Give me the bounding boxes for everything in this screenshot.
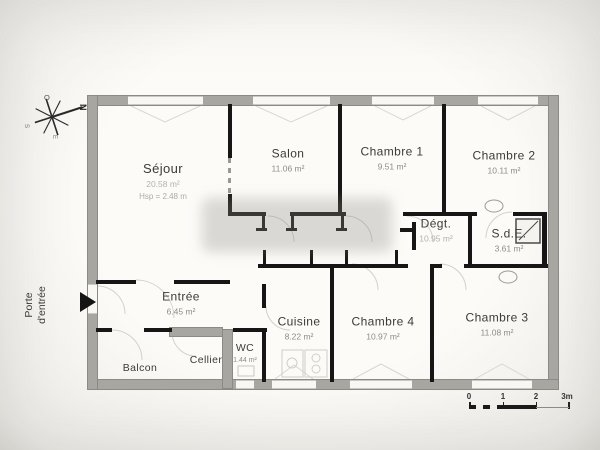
compass-rose-icon: O N S E bbox=[22, 86, 92, 156]
interior-wall-segment bbox=[464, 264, 548, 268]
exterior-wall-segment bbox=[170, 328, 222, 336]
room-label-chambre4: Chambre 4 10.97 m² bbox=[352, 315, 415, 342]
compass-west-label: O bbox=[44, 93, 50, 102]
room-label-wc: WC 1.44 m² bbox=[233, 342, 257, 364]
interior-wall-segment bbox=[258, 264, 408, 268]
window-opening bbox=[478, 96, 538, 105]
room-label-cuisine: Cuisine 8.22 m² bbox=[278, 315, 321, 342]
interior-wall-segment bbox=[412, 222, 416, 250]
washbasin-icon bbox=[499, 271, 517, 283]
room-label-salon: Salon 11.06 m² bbox=[272, 147, 305, 174]
interior-wall-segment bbox=[400, 228, 412, 232]
interior-wall-segment bbox=[96, 328, 112, 332]
interior-wall-segment bbox=[395, 250, 398, 264]
interior-wall-segment bbox=[262, 330, 266, 382]
kitchen-fixtures bbox=[282, 350, 327, 377]
room-label-entree: Entrée 6.45 m² bbox=[162, 290, 200, 317]
compass-south-label: S bbox=[23, 124, 29, 128]
entrance-label-line1: Porte bbox=[23, 275, 36, 335]
entrance-arrow-icon bbox=[80, 292, 96, 312]
window-opening bbox=[128, 96, 203, 105]
interior-wall-segment bbox=[144, 328, 172, 332]
ceiling-height-note: Hsp = 2.48 m bbox=[139, 192, 187, 201]
interior-wall-segment bbox=[310, 250, 313, 264]
scale-bar: 0 1 2 3m bbox=[466, 392, 576, 414]
window-opening bbox=[472, 380, 532, 389]
room-label-chambre2: Chambre 2 10.11 m² bbox=[473, 149, 536, 176]
interior-wall-segment bbox=[174, 280, 230, 284]
interior-wall-segment bbox=[263, 250, 266, 264]
room-label-sde: S.d.E. 3.61 m² bbox=[491, 227, 526, 254]
interior-wall-segment bbox=[262, 284, 266, 308]
interior-wall-segment bbox=[403, 212, 477, 216]
interior-wall-segment bbox=[442, 104, 446, 216]
entrance-door-label: Porte d'entrée bbox=[23, 275, 81, 335]
interior-wall-segment bbox=[96, 280, 136, 284]
interior-wall-segment bbox=[542, 212, 547, 268]
exterior-wall-segment bbox=[223, 330, 232, 388]
entrance-label-line2: d'entrée bbox=[36, 275, 49, 335]
compass-north-label: N bbox=[78, 104, 88, 111]
watermark-blur bbox=[202, 198, 392, 252]
floor-plan-photo: O N S E Porte d'entrée Séjour 20.58 m² H… bbox=[0, 0, 600, 450]
interior-wall-segment bbox=[345, 250, 348, 264]
compass-east-label: E bbox=[51, 135, 57, 139]
room-label-balcon: Balcon bbox=[123, 362, 158, 374]
interior-wall-segment bbox=[233, 328, 267, 332]
sliding-door-dash bbox=[228, 158, 231, 194]
interior-wall-segment bbox=[513, 212, 546, 216]
window-opening bbox=[253, 96, 330, 105]
interior-wall-segment bbox=[330, 268, 334, 382]
room-label-chambre3: Chambre 3 11.08 m² bbox=[466, 311, 529, 338]
interior-wall-segment bbox=[430, 268, 434, 382]
scale-tick-label: 0 bbox=[467, 392, 471, 401]
room-label-chambre1: Chambre 1 9.51 m² bbox=[361, 145, 424, 172]
window-opening bbox=[350, 380, 412, 389]
toilet-icon bbox=[238, 366, 254, 376]
window-opening bbox=[372, 96, 434, 105]
interior-wall-segment bbox=[228, 104, 232, 158]
room-label-sejour: Séjour 20.58 m² Hsp = 2.48 m bbox=[139, 161, 187, 201]
interior-wall-segment bbox=[468, 214, 472, 268]
scale-tick-label: 1 bbox=[501, 392, 505, 401]
window-opening bbox=[236, 380, 254, 389]
washbasin-icon bbox=[485, 200, 503, 212]
exterior-wall-segment bbox=[549, 96, 558, 389]
interior-wall-segment bbox=[430, 264, 442, 268]
room-label-degagement: Dégt. 10.95 m² bbox=[419, 217, 453, 244]
scale-tick-label: 2 bbox=[534, 392, 538, 401]
room-label-cellier: Cellier bbox=[190, 354, 223, 366]
scale-tick-label: 3m bbox=[561, 392, 573, 401]
window-opening bbox=[272, 380, 316, 389]
